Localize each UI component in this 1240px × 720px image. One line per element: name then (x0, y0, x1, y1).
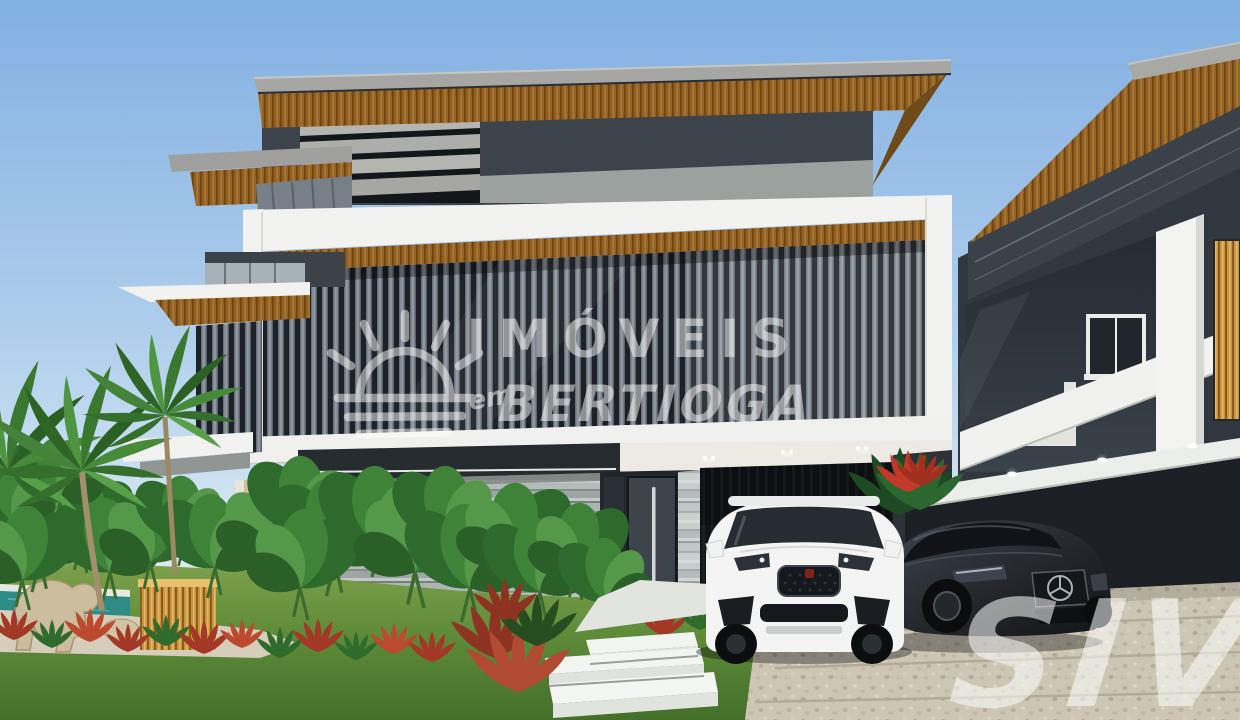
timber-slat-screen (1214, 240, 1240, 420)
corner-logo: SIV (943, 568, 1240, 720)
rendering-canvas: IMÓVEIS em BERTIOGA SIV (0, 0, 1240, 720)
jaguar-badge-icon (805, 569, 814, 578)
main-roof (254, 60, 951, 205)
suv-lower-grille (760, 604, 848, 622)
upper-left-slab (168, 146, 352, 212)
suv-intake-right (854, 596, 890, 626)
door-handle (652, 487, 656, 589)
corner-logo-text: SIV (943, 568, 1240, 720)
watermark-city: BERTIOGA (496, 375, 815, 433)
white-suv (696, 496, 912, 664)
scene-svg: IMÓVEIS em BERTIOGA SIV (0, 0, 1240, 720)
suv-skid-plate (766, 626, 842, 634)
watermark-title: IMÓVEIS (466, 307, 801, 370)
suv-intake-left (718, 596, 754, 626)
suv-roof (728, 496, 880, 506)
